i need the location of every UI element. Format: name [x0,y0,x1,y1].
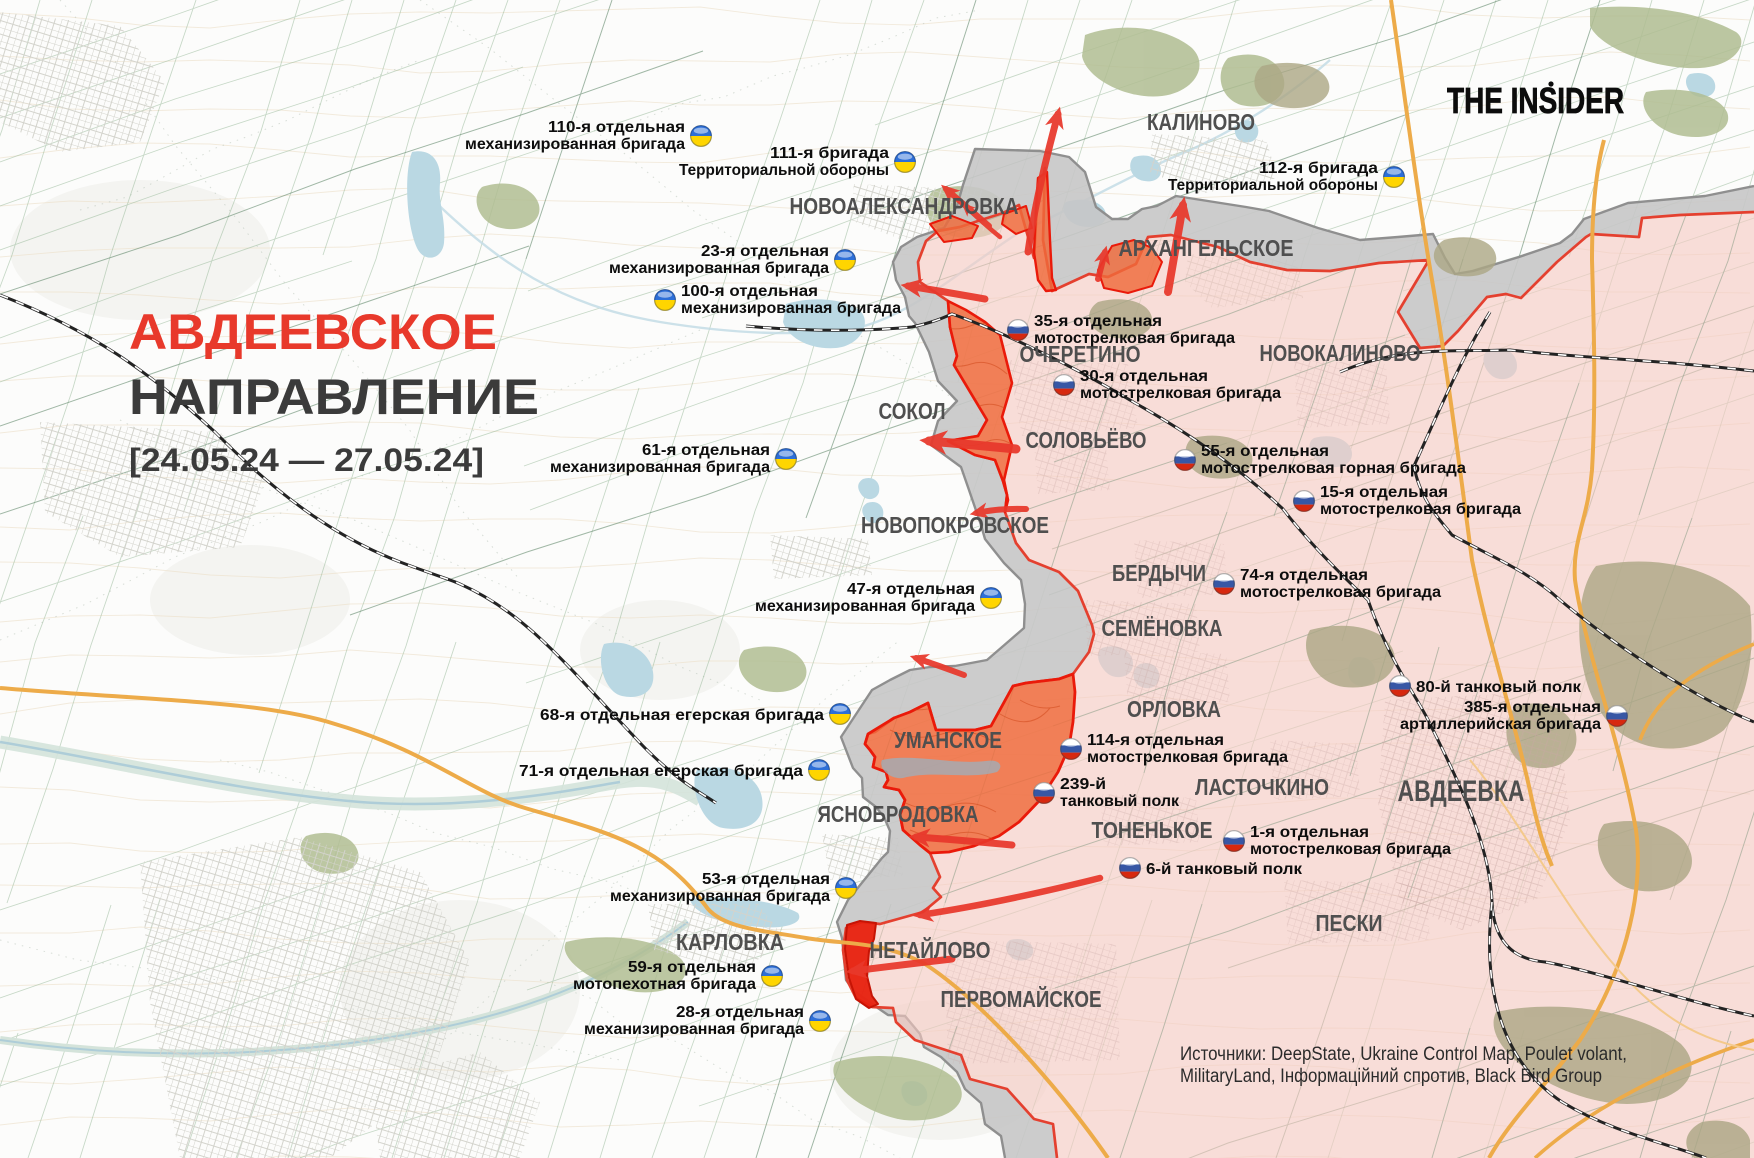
svg-text:мотострелковая бригада: мотострелковая бригада [1087,749,1288,766]
svg-text:74-я отдельная: 74-я отдельная [1240,567,1368,584]
svg-text:80-й танковый полк: 80-й танковый полк [1416,679,1582,696]
svg-text:114-я отдельная: 114-я отдельная [1087,732,1224,749]
svg-text:СОЛОВЬЁВО: СОЛОВЬЁВО [1026,427,1147,453]
svg-text:385-я отдельная: 385-я отдельная [1464,699,1601,716]
svg-text:НОВОАЛЕКСАНДРОВКА: НОВОАЛЕКСАНДРОВКА [790,193,1019,219]
svg-text:механизированная бригада: механизированная бригада [609,260,829,277]
svg-text:НАПРАВЛЕНИЕ: НАПРАВЛЕНИЕ [129,369,539,425]
svg-text:28-я отдельная: 28-я отдельная [676,1004,804,1021]
svg-text:1-я отдельная: 1-я отдельная [1250,824,1369,841]
svg-text:Территориальной обороны: Территориальной обороны [1168,177,1378,194]
svg-text:THE INSIDER: THE INSIDER [1447,80,1624,121]
svg-text:239-й: 239-й [1060,776,1106,793]
svg-text:Территориальной обороны: Территориальной обороны [679,162,889,179]
svg-text:68-я отдельная егерская бригад: 68-я отдельная егерская бригада [540,707,824,724]
svg-text:механизированная бригада: механизированная бригада [755,598,975,615]
svg-text:59-я отдельная: 59-я отдельная [628,959,756,976]
svg-text:112-я бригада: 112-я бригада [1259,160,1378,177]
svg-text:КАЛИНОВО: КАЛИНОВО [1147,109,1255,135]
svg-text:артиллерийская бригада: артиллерийская бригада [1400,716,1601,733]
svg-text:НОВОПОКРОВСКОЕ: НОВОПОКРОВСКОЕ [861,512,1049,538]
svg-text:мотострелковая горная бригада: мотострелковая горная бригада [1201,460,1466,477]
svg-text:мотострелковая бригада: мотострелковая бригада [1034,330,1235,347]
svg-text:30-я отдельная: 30-я отдельная [1080,368,1208,385]
svg-text:мотострелковая бригада: мотострелковая бригада [1320,501,1521,518]
svg-text:механизированная бригада: механизированная бригада [681,300,901,317]
svg-text:танковый полк: танковый полк [1060,793,1180,810]
svg-text:мотопехотная бригада: мотопехотная бригада [573,976,756,993]
svg-text:ЛАСТОЧКИНО: ЛАСТОЧКИНО [1195,774,1329,800]
svg-text:6-й танковый полк: 6-й танковый полк [1146,861,1303,878]
svg-text:23-я отдельная: 23-я отдельная [701,243,829,260]
svg-text:71-я отдельная егерская бригад: 71-я отдельная егерская бригада [519,763,803,780]
svg-text:механизированная бригада: механизированная бригада [610,888,830,905]
svg-text:35-я отдельная: 35-я отдельная [1034,313,1162,330]
svg-text:механизированная бригада: механизированная бригада [550,459,770,476]
svg-text:[24.05.24 — 27.05.24]: [24.05.24 — 27.05.24] [129,442,484,478]
svg-text:100-я отдельная: 100-я отдельная [681,283,818,300]
svg-text:СЕМЁНОВКА: СЕМЁНОВКА [1102,615,1223,641]
svg-text:15-я отдельная: 15-я отдельная [1320,484,1448,501]
svg-text:СОКОЛ: СОКОЛ [879,398,946,424]
svg-text:ТОНЕНЬКОЕ: ТОНЕНЬКОЕ [1092,817,1213,843]
svg-text:ПЕСКИ: ПЕСКИ [1316,910,1383,936]
svg-text:механизированная бригада: механизированная бригада [465,136,685,153]
svg-text:НЕТАЙЛОВО: НЕТАЙЛОВО [870,936,991,963]
svg-text:MilitaryLand, Інформаційний сп: MilitaryLand, Інформаційний спротив, Bla… [1180,1066,1602,1087]
svg-text:мотострелковая бригада: мотострелковая бригада [1250,841,1451,858]
svg-text:ОРЛОВКА: ОРЛОВКА [1127,696,1221,722]
svg-text:ПЕРВОМАЙСКОЕ: ПЕРВОМАЙСКОЕ [941,985,1102,1012]
svg-text:53-я отдельная: 53-я отдельная [702,871,830,888]
svg-text:111-я бригада: 111-я бригада [770,145,889,162]
svg-text:мотострелковая бригада: мотострелковая бригада [1080,385,1281,402]
svg-text:47-я отдельная: 47-я отдельная [847,581,975,598]
svg-text:КАРЛОВКА: КАРЛОВКА [676,929,784,955]
svg-text:НОВОКАЛИНОВО: НОВОКАЛИНОВО [1260,340,1421,366]
svg-text:61-я отдельная: 61-я отдельная [642,442,770,459]
svg-text:55-я отдельная: 55-я отдельная [1201,443,1329,460]
svg-text:АВДЕЕВКА: АВДЕЕВКА [1398,775,1525,808]
svg-text:ЯСНОБРОДОВКА: ЯСНОБРОДОВКА [818,801,979,827]
svg-text:АВДЕЕВСКОЕ: АВДЕЕВСКОЕ [129,304,497,360]
svg-text:БЕРДЫЧИ: БЕРДЫЧИ [1112,560,1206,586]
svg-text:мотострелковая бригада: мотострелковая бригада [1240,584,1441,601]
svg-text:Источники: DeepState, Ukraine: Источники: DeepState, Ukraine Control Ma… [1180,1044,1627,1065]
svg-text:АРХАНГЕЛЬСКОЕ: АРХАНГЕЛЬСКОЕ [1119,235,1294,261]
svg-text:110-я отдельная: 110-я отдельная [548,119,685,136]
svg-text:УМАНСКОЕ: УМАНСКОЕ [894,727,1002,753]
svg-text:механизированная бригада: механизированная бригада [584,1021,804,1038]
